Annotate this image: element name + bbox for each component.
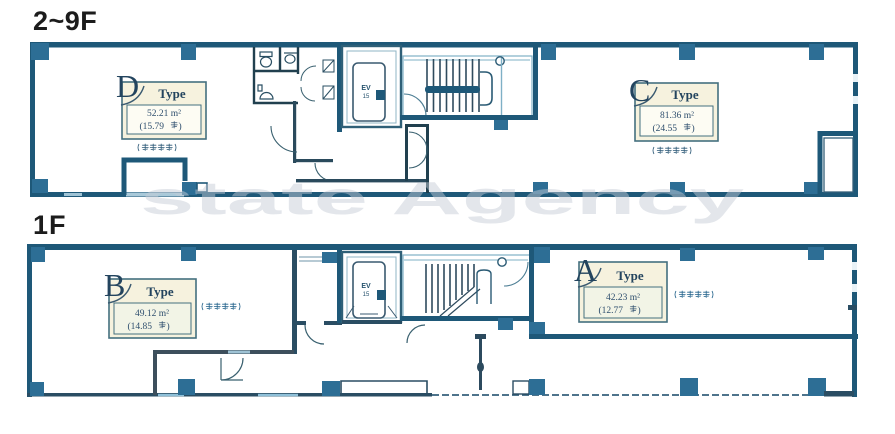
svg-text:15: 15 bbox=[363, 94, 370, 100]
svg-text:): ) bbox=[179, 121, 182, 132]
svg-text:state Agency: state Agency bbox=[140, 172, 745, 224]
svg-text:(24.55: (24.55 bbox=[653, 123, 678, 134]
svg-text:(14.85: (14.85 bbox=[128, 321, 153, 332]
svg-text:): ) bbox=[638, 305, 641, 316]
svg-text:1F: 1F bbox=[33, 210, 67, 240]
svg-text:Type: Type bbox=[671, 87, 698, 102]
svg-text:15: 15 bbox=[363, 292, 370, 298]
svg-text:D: D bbox=[116, 68, 139, 104]
svg-text:Type: Type bbox=[158, 86, 185, 101]
svg-text:49.12 m²: 49.12 m² bbox=[135, 309, 169, 319]
svg-text:A: A bbox=[574, 252, 597, 288]
svg-text:Type: Type bbox=[616, 268, 643, 283]
svg-text:C: C bbox=[629, 72, 650, 108]
svg-text:(15.79: (15.79 bbox=[140, 121, 165, 132]
svg-text:EV: EV bbox=[361, 85, 371, 92]
svg-text:42.23 m²: 42.23 m² bbox=[606, 293, 640, 303]
svg-text:81.36 m²: 81.36 m² bbox=[660, 111, 694, 121]
svg-text:2~9F: 2~9F bbox=[33, 6, 97, 36]
svg-text:): ) bbox=[167, 321, 170, 332]
svg-text:52.21 m²: 52.21 m² bbox=[147, 109, 181, 119]
svg-text:B: B bbox=[104, 267, 125, 303]
svg-text:): ) bbox=[692, 123, 695, 134]
svg-text:Type: Type bbox=[146, 284, 173, 299]
svg-text:EV: EV bbox=[361, 283, 371, 290]
svg-text:(12.77: (12.77 bbox=[599, 305, 624, 316]
